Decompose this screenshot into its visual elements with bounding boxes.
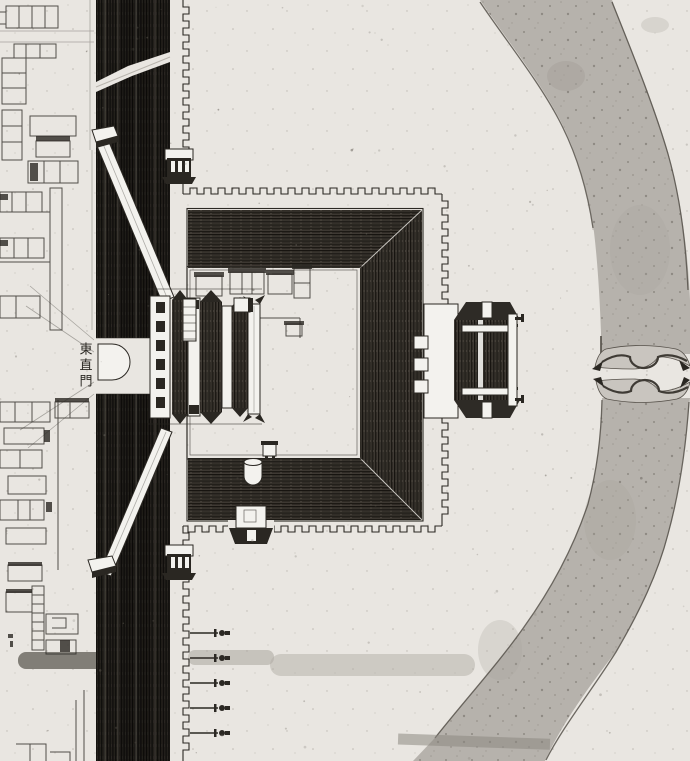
guardhouse-south xyxy=(162,545,196,580)
map-drawing: 東直門 xyxy=(0,0,690,761)
paper-stain xyxy=(641,17,669,33)
courtyard-well xyxy=(244,459,262,486)
gate-tower-roof-main xyxy=(200,302,222,412)
guardhouse-north xyxy=(162,149,196,184)
gate-tower-roof-east xyxy=(232,306,248,408)
archery-tower-ridge xyxy=(508,314,517,406)
road-shadow-east-2 xyxy=(270,654,475,676)
archery-tower xyxy=(414,302,524,418)
gate-name-label: 東直門 xyxy=(77,341,93,390)
gate-tower xyxy=(148,289,265,424)
gate-tower-corner-pavilion xyxy=(234,298,250,312)
map-canvas: 東直門 xyxy=(0,0,690,761)
tower-stair xyxy=(183,299,196,341)
gate-tower-ridge xyxy=(222,306,232,408)
gate-arch xyxy=(98,344,130,380)
archery-tower-platform xyxy=(424,304,458,418)
river-stain xyxy=(547,61,585,91)
